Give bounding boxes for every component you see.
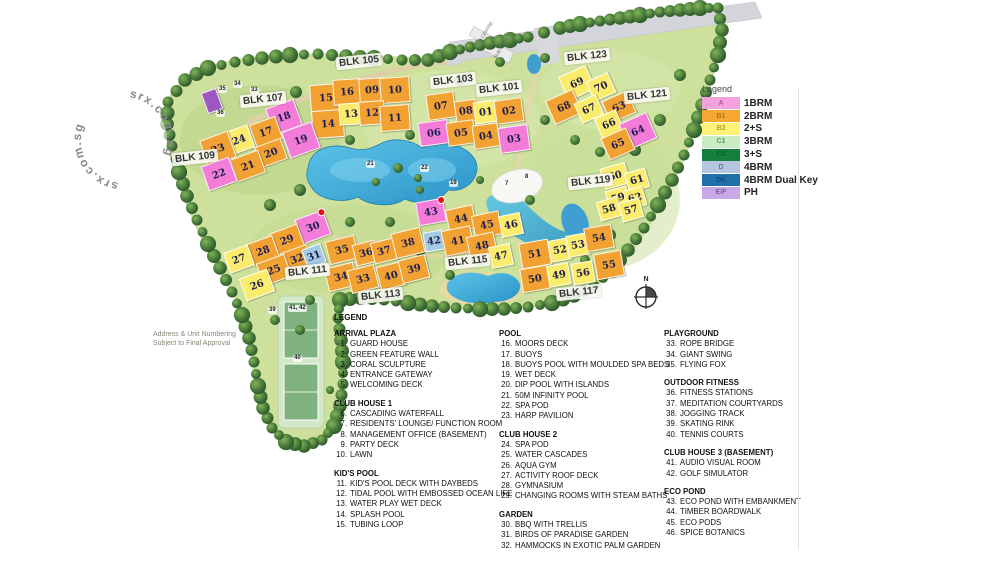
- amenity-item-text: SPLASH POOL: [350, 510, 405, 520]
- amenity-section: PLAYGROUND33.ROPE BRIDGE34.GIANT SWING35…: [664, 329, 829, 370]
- amenity-item: 18.BUOYS POOL WITH MOULDED SPA BEDS: [499, 360, 664, 370]
- amenity-item-number: 38.: [664, 409, 677, 419]
- amenity-item-text: TENNIS COURTS: [680, 430, 744, 440]
- amenity-item-number: 9.: [334, 440, 347, 450]
- map-point-label: 41, 42: [288, 305, 307, 312]
- amenity-item-text: MANAGEMENT OFFICE (BASEMENT): [350, 430, 487, 440]
- amenity-item-number: 2.: [334, 350, 347, 360]
- amenity-item: 11.KID'S POOL DECK WITH DAYBEDS: [334, 479, 499, 489]
- amenity-item-text: JOGGING TRACK: [680, 409, 744, 419]
- amenity-item-text: GYMNASIUM: [515, 481, 563, 491]
- legend-label: 1BRM: [744, 98, 772, 109]
- compass-north-label: N: [632, 276, 660, 283]
- amenity-item-text: TIDAL POOL WITH EMBOSSED OCEAN LIFE: [350, 489, 512, 499]
- legend-row: C23+S: [690, 148, 802, 161]
- amenity-item-text: FITNESS STATIONS: [680, 388, 753, 398]
- amenity-item-number: 5.: [334, 380, 347, 390]
- amenity-item-text: FLYING FOX: [680, 360, 726, 370]
- amenity-item-text: GOLF SIMULATOR: [680, 469, 748, 479]
- amenity-item: 21.50M INFINITY POOL: [499, 391, 664, 401]
- amenity-item: 8.MANAGEMENT OFFICE (BASEMENT): [334, 430, 499, 440]
- amenity-item-number: 42.: [664, 469, 677, 479]
- amenity-item-text: WATER CASCADES: [515, 450, 587, 460]
- amenity-item: 41.AUDIO VISUAL ROOM: [664, 458, 829, 468]
- amenity-item-text: RESIDENTS' LOUNGE/ FUNCTION ROOM: [350, 419, 502, 429]
- amenity-item-number: 20.: [499, 380, 512, 390]
- amenity-item-text: SPA POD: [515, 401, 549, 411]
- amenity-item: 25.WATER CASCADES: [499, 450, 664, 460]
- legend-swatch: C1: [702, 136, 740, 148]
- unit-type-legend: Legend A1BRMB12BRMB22+SC13BRMC23+SD4BRMD…: [690, 84, 802, 199]
- map-point-label: 33: [250, 87, 259, 94]
- disclaimer: Address & Unit Numbering Subject to Fina…: [153, 330, 236, 348]
- legend-label: PH: [744, 187, 758, 198]
- amenity-item-text: SPA POD: [515, 440, 549, 450]
- legend-label: 4BRM: [744, 162, 772, 173]
- amenity-item-number: 17.: [499, 350, 512, 360]
- amenity-section: ECO POND43.ECO POND WITH EMBANKMENT44.TI…: [664, 487, 829, 538]
- amenity-item-number: 10.: [334, 450, 347, 460]
- amenity-section: GARDEN30.BBQ WITH TRELLIS31.BIRDS OF PAR…: [499, 510, 664, 551]
- amenity-item: 29.CHANGING ROOMS WITH STEAM BATHS: [499, 491, 664, 501]
- amenity-item-text: 50M INFINITY POOL: [515, 391, 589, 401]
- amenity-item-number: 22.: [499, 401, 512, 411]
- amenity-section-heading: PLAYGROUND: [664, 329, 829, 339]
- amenity-item-number: 24.: [499, 440, 512, 450]
- legend-label: 2+S: [744, 123, 762, 134]
- legend-label: 3+S: [744, 149, 762, 160]
- amenity-item: 24.SPA POD: [499, 440, 664, 450]
- amenity-item-number: 15.: [334, 520, 347, 530]
- amenity-section-heading: CLUB HOUSE 1: [334, 399, 499, 409]
- amenity-item-number: 35.: [664, 360, 677, 370]
- amenity-item-text: LAWN: [350, 450, 372, 460]
- amenity-item-text: DIP POOL WITH ISLANDS: [515, 380, 609, 390]
- amenity-item-text: SKATING RINK: [680, 419, 734, 429]
- amenity-item: 34.GIANT SWING: [664, 350, 829, 360]
- amenity-item: 28.GYMNASIUM: [499, 481, 664, 491]
- amenity-section-heading: ARRIVAL PLAZA: [334, 329, 499, 339]
- amenity-item-text: GREEN FEATURE WALL: [350, 350, 439, 360]
- map-point-label: 21: [366, 161, 375, 168]
- amenity-item: 17.BUOYS: [499, 350, 664, 360]
- amenity-item-number: 30.: [499, 520, 512, 530]
- legend-row: E/FPH: [690, 187, 802, 200]
- amenity-item: 36.FITNESS STATIONS: [664, 388, 829, 398]
- amenity-column: POOL16.MOORS DECK17.BUOYS18.BUOYS POOL W…: [499, 329, 664, 559]
- amenity-section: ARRIVAL PLAZA1.GUARD HOUSE2.GREEN FEATUR…: [334, 329, 499, 391]
- legend-row: DK4BRM Dual Key: [690, 174, 802, 187]
- amenity-item-text: PARTY DECK: [350, 440, 399, 450]
- amenity-section-heading: CLUB HOUSE 2: [499, 430, 664, 440]
- amenity-item-text: SPICE BOTANICS: [680, 528, 745, 538]
- amenity-item-text: GUARD HOUSE: [350, 339, 408, 349]
- amenity-item: 42.GOLF SIMULATOR: [664, 469, 829, 479]
- legend-swatch: DK: [702, 174, 740, 186]
- amenity-item: 30.BBQ WITH TRELLIS: [499, 520, 664, 530]
- amenity-item-number: 41.: [664, 458, 677, 468]
- amenity-item-text: ENTRANCE GATEWAY: [350, 370, 433, 380]
- amenity-item-number: 12.: [334, 489, 347, 499]
- amenity-item-number: 43.: [664, 497, 677, 507]
- amenity-item-text: CHANGING ROOMS WITH STEAM BATHS: [515, 491, 667, 501]
- amenity-item: 16.MOORS DECK: [499, 339, 664, 349]
- amenity-column: ARRIVAL PLAZA1.GUARD HOUSE2.GREEN FEATUR…: [334, 329, 499, 538]
- amenity-item-text: TUBING LOOP: [350, 520, 403, 530]
- compass: N: [632, 276, 660, 314]
- amenity-item-number: 32.: [499, 541, 512, 551]
- amenity-item-text: AUDIO VISUAL ROOM: [680, 458, 761, 468]
- amenity-item: 39.SKATING RINK: [664, 419, 829, 429]
- amenity-item-text: ROPE BRIDGE: [680, 339, 734, 349]
- amenity-section-heading: OUTDOOR FITNESS: [664, 378, 829, 388]
- disclaimer-line2: Subject to Final Approval: [153, 339, 236, 348]
- amenity-item: 20.DIP POOL WITH ISLANDS: [499, 380, 664, 390]
- amenity-item: 7.RESIDENTS' LOUNGE/ FUNCTION ROOM: [334, 419, 499, 429]
- legend-row: B22+S: [690, 123, 802, 136]
- amenity-legend-title: LEGEND: [334, 313, 367, 322]
- map-point-label: 8: [524, 174, 529, 181]
- amenity-item-number: 19.: [499, 370, 512, 380]
- map-point-label: 34: [233, 81, 242, 88]
- amenity-item-number: 25.: [499, 450, 512, 460]
- amenity-item-number: 44.: [664, 507, 677, 517]
- amenity-item-number: 46.: [664, 528, 677, 538]
- amenity-item: 10.LAWN: [334, 450, 499, 460]
- amenity-section: OUTDOOR FITNESS36.FITNESS STATIONS37.MED…: [664, 378, 829, 440]
- map-point-label: 22: [420, 165, 429, 172]
- legend-label: 4BRM Dual Key: [744, 175, 818, 186]
- map-point-label: 36: [216, 110, 225, 117]
- amenity-item-text: MOORS DECK: [515, 339, 568, 349]
- amenity-section-heading: GARDEN: [499, 510, 664, 520]
- amenity-item-text: BIRDS OF PARADISE GARDEN: [515, 530, 628, 540]
- amenity-item-number: 6.: [334, 409, 347, 419]
- map-point-label: 39: [268, 307, 277, 314]
- amenity-item-number: 28.: [499, 481, 512, 491]
- compass-icon: [633, 283, 659, 309]
- unit-legend-title: Legend: [702, 84, 802, 94]
- amenity-column: PLAYGROUND33.ROPE BRIDGE34.GIANT SWING35…: [664, 329, 829, 546]
- amenity-item-text: HARP PAVILION: [515, 411, 574, 421]
- map-point-label: 19: [449, 180, 458, 187]
- amenity-item-number: 45.: [664, 518, 677, 528]
- amenity-item-text: CASCADING WATERFALL: [350, 409, 444, 419]
- amenity-item-text: WELCOMING DECK: [350, 380, 423, 390]
- amenity-item: 43.ECO POND WITH EMBANKMENT: [664, 497, 829, 507]
- amenity-item: 5.WELCOMING DECK: [334, 380, 499, 390]
- amenity-item: 13.WATER PLAY WET DECK: [334, 499, 499, 509]
- amenity-item: 22.SPA POD: [499, 401, 664, 411]
- amenity-item: 27.ACTIVITY ROOF DECK: [499, 471, 664, 481]
- legend-row: C13BRM: [690, 135, 802, 148]
- amenity-section: CLUB HOUSE 3 (BASEMENT)41.AUDIO VISUAL R…: [664, 448, 829, 479]
- amenity-item-text: WET DECK: [515, 370, 556, 380]
- amenity-item-number: 8.: [334, 430, 347, 440]
- amenity-item-number: 11.: [334, 479, 347, 489]
- legend-swatch: C2: [702, 149, 740, 161]
- legend-swatch: E/F: [702, 187, 740, 199]
- amenity-item: 3.CORAL SCULPTURE: [334, 360, 499, 370]
- amenity-item-text: GIANT SWING: [680, 350, 732, 360]
- amenity-item-number: 29.: [499, 491, 512, 501]
- amenity-item: 12.TIDAL POOL WITH EMBOSSED OCEAN LIFE: [334, 489, 499, 499]
- amenity-item-number: 23.: [499, 411, 512, 421]
- amenity-item-number: 3.: [334, 360, 347, 370]
- site-plan: srx.com.sg srx.com.sg 151609101413121107…: [0, 0, 1000, 561]
- legend-row: D4BRM: [690, 161, 802, 174]
- amenity-item-number: 27.: [499, 471, 512, 481]
- amenity-item-text: CORAL SCULPTURE: [350, 360, 426, 370]
- amenity-item-text: KID'S POOL DECK WITH DAYBEDS: [350, 479, 478, 489]
- amenity-item-number: 40.: [664, 430, 677, 440]
- amenity-item-text: ECO PODS: [680, 518, 721, 528]
- amenity-item-number: 39.: [664, 419, 677, 429]
- amenity-item: 6.CASCADING WATERFALL: [334, 409, 499, 419]
- legend-label: 3BRM: [744, 136, 772, 147]
- amenity-item-text: AQUA GYM: [515, 461, 557, 471]
- amenity-item: 35.FLYING FOX: [664, 360, 829, 370]
- amenity-item: 4.ENTRANCE GATEWAY: [334, 370, 499, 380]
- page-divider: [798, 88, 799, 550]
- amenity-item-number: 16.: [499, 339, 512, 349]
- map-point-label: 35: [218, 86, 227, 93]
- amenity-section-heading: POOL: [499, 329, 664, 339]
- amenity-section: CLUB HOUSE 16.CASCADING WATERFALL7.RESID…: [334, 399, 499, 461]
- amenity-item-number: 13.: [334, 499, 347, 509]
- map-point-label: 40: [293, 355, 302, 362]
- amenity-section: CLUB HOUSE 224.SPA POD25.WATER CASCADES2…: [499, 430, 664, 502]
- amenity-item-number: 14.: [334, 510, 347, 520]
- amenity-item: 1.GUARD HOUSE: [334, 339, 499, 349]
- amenity-item-text: WATER PLAY WET DECK: [350, 499, 442, 509]
- amenity-item: 2.GREEN FEATURE WALL: [334, 350, 499, 360]
- amenity-item: 31.BIRDS OF PARADISE GARDEN: [499, 530, 664, 540]
- amenity-item-number: 7.: [334, 419, 347, 429]
- legend-row: A1BRM: [690, 97, 802, 110]
- amenity-item: 38.JOGGING TRACK: [664, 409, 829, 419]
- amenity-item-number: 36.: [664, 388, 677, 398]
- amenity-item: 44.TIMBER BOARDWALK: [664, 507, 829, 517]
- amenity-item: 23.HARP PAVILION: [499, 411, 664, 421]
- amenity-item: 32.HAMMOCKS IN EXOTIC PALM GARDEN: [499, 541, 664, 551]
- disclaimer-line1: Address & Unit Numbering: [153, 330, 236, 339]
- legend-row: B12BRM: [690, 110, 802, 123]
- legend-label: 2BRM: [744, 111, 772, 122]
- amenity-item-text: MEDITATION COURTYARDS: [680, 399, 783, 409]
- amenity-item-number: 18.: [499, 360, 512, 370]
- amenity-item: 46.SPICE BOTANICS: [664, 528, 829, 538]
- amenity-item-number: 26.: [499, 461, 512, 471]
- amenity-item-number: 1.: [334, 339, 347, 349]
- amenity-item-text: TIMBER BOARDWALK: [680, 507, 761, 517]
- amenity-item-text: ECO POND WITH EMBANKMENT: [680, 497, 801, 507]
- map-point-label: SUB STATION: [491, 30, 514, 60]
- amenity-section: KID'S POOL11.KID'S POOL DECK WITH DAYBED…: [334, 469, 499, 531]
- amenity-item: 40.TENNIS COURTS: [664, 430, 829, 440]
- amenity-section-heading: KID'S POOL: [334, 469, 499, 479]
- amenity-item: 14.SPLASH POOL: [334, 510, 499, 520]
- amenity-item-number: 34.: [664, 350, 677, 360]
- amenity-item-number: 21.: [499, 391, 512, 401]
- amenity-item-text: ACTIVITY ROOF DECK: [515, 471, 598, 481]
- amenity-item: 37.MEDITATION COURTYARDS: [664, 399, 829, 409]
- legend-swatch: B1: [702, 110, 740, 122]
- amenity-item-number: 31.: [499, 530, 512, 540]
- amenity-item-text: BUOYS POOL WITH MOULDED SPA BEDS: [515, 360, 669, 370]
- amenity-item: 45.ECO PODS: [664, 518, 829, 528]
- amenity-section-heading: ECO POND: [664, 487, 829, 497]
- legend-swatch: B2: [702, 123, 740, 135]
- amenity-item: 19.WET DECK: [499, 370, 664, 380]
- amenity-item-number: 33.: [664, 339, 677, 349]
- map-point-label: BIN CENTRE: [474, 19, 495, 48]
- amenity-section-heading: CLUB HOUSE 3 (BASEMENT): [664, 448, 829, 458]
- legend-swatch: D: [702, 161, 740, 173]
- amenity-item: 26.AQUA GYM: [499, 461, 664, 471]
- amenity-item: 15.TUBING LOOP: [334, 520, 499, 530]
- legend-swatch: A: [702, 97, 740, 109]
- amenity-item-number: 37.: [664, 399, 677, 409]
- amenity-item-text: BBQ WITH TRELLIS: [515, 520, 587, 530]
- amenity-item-number: 4.: [334, 370, 347, 380]
- amenity-item-text: HAMMOCKS IN EXOTIC PALM GARDEN: [515, 541, 660, 551]
- amenity-section: POOL16.MOORS DECK17.BUOYS18.BUOYS POOL W…: [499, 329, 664, 422]
- amenity-item: 33.ROPE BRIDGE: [664, 339, 829, 349]
- amenity-item-text: BUOYS: [515, 350, 542, 360]
- map-point-label: 7: [504, 181, 509, 188]
- amenity-item: 9.PARTY DECK: [334, 440, 499, 450]
